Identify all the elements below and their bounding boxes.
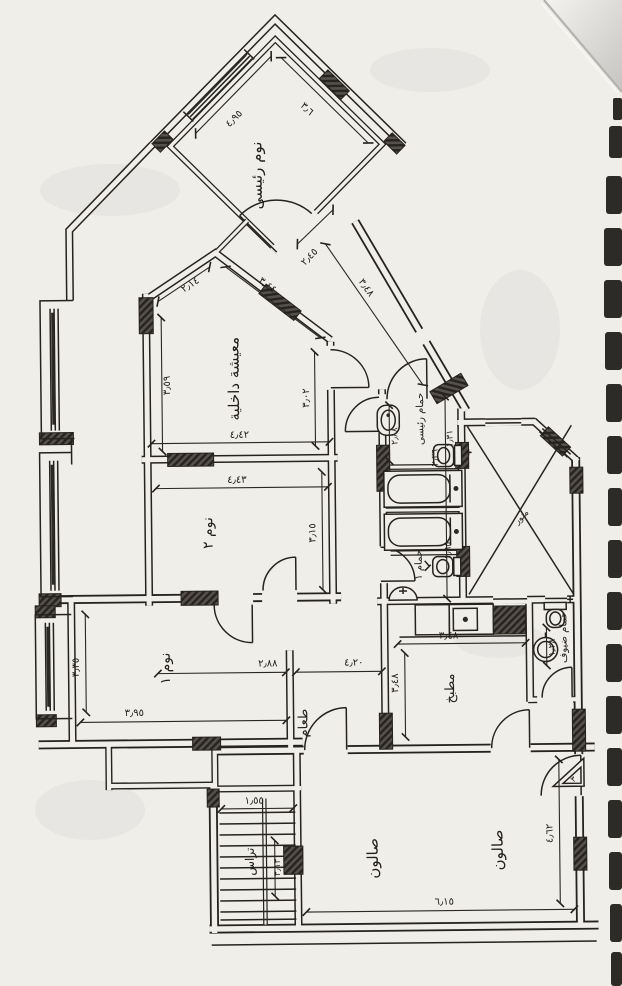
dim-terrace-east: ٣٫١٣ [273, 858, 283, 876]
dim-living-west: ٣٫٥٩ [162, 376, 173, 395]
dim-kitchen-west: ٣٫٤٨ [390, 673, 401, 693]
dim-bed1-south: ٣٫٩٥ [125, 708, 144, 719]
dim-bed1-west: ٣٫٣٥ [71, 658, 82, 677]
dim-terrace-north: ١٫٥٥ [244, 796, 263, 807]
kitchen-fixtures [399, 604, 525, 637]
dim-living-east: ٣٫٠٢ [301, 388, 312, 407]
room-label-bath1: حمام ١ [414, 550, 425, 580]
dim-master-bath-mid: ٢٫٣٦ [431, 449, 441, 467]
room-label-guest-bath: حمام ضيوف [558, 612, 570, 664]
room-label-master-bath: حمام رئيسى [415, 393, 427, 445]
room-label-kitchen: مطبخ [443, 673, 458, 703]
dim-bath1-east: ١٫٦٥ [444, 542, 454, 560]
kitchen-stove [493, 606, 525, 634]
room-label-salon-b: صالون [489, 830, 507, 871]
dim-living-south: ٤٫٤٢ [230, 430, 249, 441]
dim-master-bath-east: ١٫٣١ [445, 430, 455, 448]
dim-hall-b: ٤٫٢٠ [344, 657, 363, 668]
room-label-dining: طعام [296, 709, 311, 738]
dim-bed2-east: ٣٫١٥ [307, 523, 318, 542]
dim-hall-a: ٢٫٨٨ [258, 658, 278, 669]
room-label-master-bedroom: نوم رئيسى [247, 142, 266, 210]
dim-salon-east: ٤٫٦٢ [544, 824, 555, 843]
dim-kitchen-north: ٣٫٤٨ [439, 630, 459, 641]
stairs-column-hatch [284, 846, 303, 874]
room-label-terrace: تراس [243, 848, 258, 876]
dim-salon-south: ٦٫١٥ [435, 897, 454, 908]
dim-bed2-north: ٤٫٤٣ [227, 475, 247, 486]
room-label-living: معيشة داخلية [224, 337, 243, 421]
room-label-salon-a: صالون [364, 838, 382, 879]
dim-master-bath-west: ٢٫٨٨ [390, 427, 400, 445]
floor-plan-canvas: ٤٫٩٥ ٣٫٦ نوم رئيسى [0, 0, 622, 986]
bathtub-1 [384, 470, 462, 507]
room-label-bedroom2: نوم ٢ [200, 517, 216, 549]
room-label-bedroom1: نوم ١ [158, 653, 174, 685]
dim-guest-bath: ١٫٢٨ [548, 639, 558, 657]
scanned-floor-plan-page: ٤٫٩٥ ٣٫٦ نوم رئيسى [0, 0, 622, 986]
